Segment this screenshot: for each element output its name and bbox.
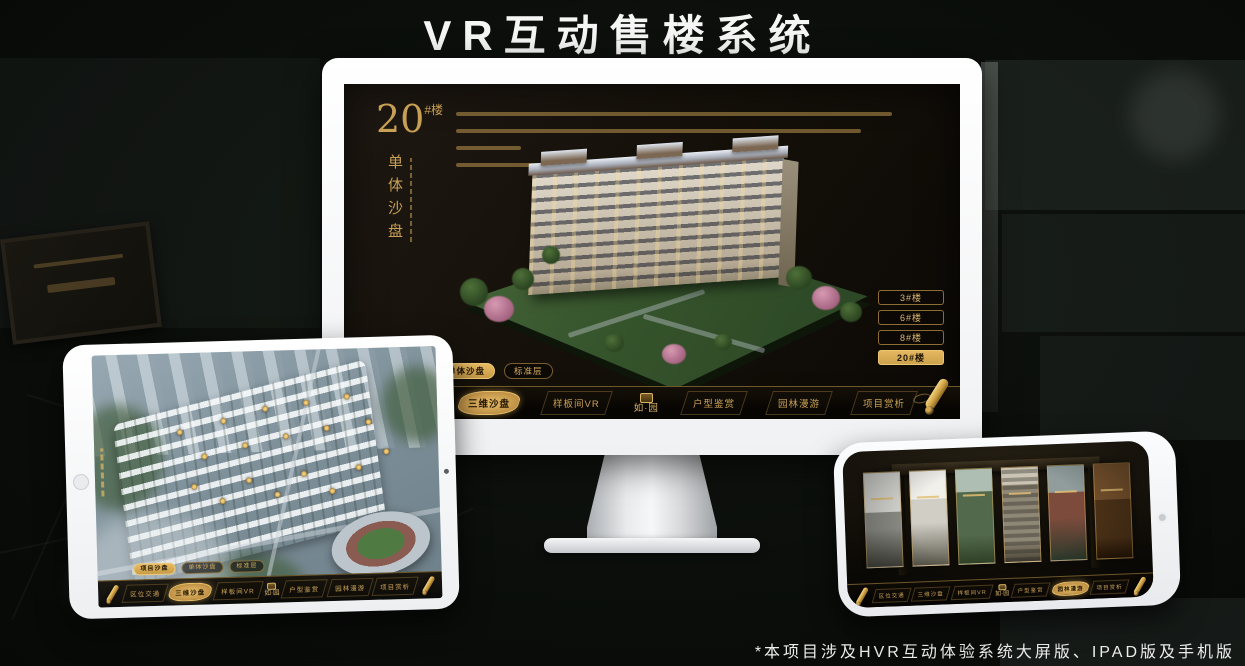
tree bbox=[512, 268, 534, 290]
nav-item-3d-sandtable[interactable]: 三维沙盘 bbox=[167, 582, 214, 601]
logo-seal-icon bbox=[640, 393, 653, 403]
building-subtitle-vertical: 单体沙盘 bbox=[384, 154, 405, 284]
nav-item-showroom-vr[interactable]: 样板间VR bbox=[540, 391, 613, 415]
floor-button-3[interactable]: 3#楼 bbox=[878, 290, 944, 305]
nav-item-showroom-vr[interactable]: 样板间VR bbox=[212, 581, 263, 600]
scroll-ornament-icon[interactable] bbox=[420, 574, 437, 596]
tree bbox=[714, 334, 732, 350]
nav-item-garden-tour[interactable]: 园林漫游 bbox=[326, 578, 373, 597]
tree bbox=[542, 246, 560, 264]
tab-standard-floor[interactable]: 标准层 bbox=[504, 363, 553, 380]
building-marker[interactable] bbox=[201, 453, 207, 459]
building-marker[interactable] bbox=[176, 429, 182, 435]
tree bbox=[840, 302, 862, 322]
nav-item-location[interactable]: 区位交通 bbox=[871, 587, 911, 603]
background-texture bbox=[981, 62, 998, 412]
floor-selector: 3#楼 6#楼 8#楼 20#楼 bbox=[878, 290, 944, 370]
tab-standard-floor[interactable]: 标准层 bbox=[229, 560, 264, 573]
building-model[interactable] bbox=[456, 150, 876, 394]
building-marker[interactable] bbox=[242, 442, 248, 448]
building-marker[interactable] bbox=[365, 418, 371, 424]
plaque-text-line bbox=[47, 277, 116, 293]
nav-item-project-gallery[interactable]: 项目赏析 bbox=[850, 391, 918, 415]
blossom-tree bbox=[812, 286, 840, 310]
nav-item-3d-sandtable[interactable]: 三维沙盘 bbox=[455, 391, 523, 415]
background-plaque bbox=[0, 221, 162, 344]
camera-icon bbox=[444, 469, 449, 474]
floor-button-20[interactable]: 20#楼 bbox=[878, 350, 944, 365]
description-text-line bbox=[456, 112, 892, 116]
scroll-end bbox=[856, 601, 861, 606]
building-number: 20 bbox=[376, 97, 424, 141]
tree bbox=[460, 278, 488, 306]
blossom-tree bbox=[662, 344, 686, 364]
description-text-line bbox=[456, 129, 861, 133]
ipad-screen: 项目沙盘 单体沙盘 标准层 区位交通 三维沙盘 样板间VR 如·园 户型鉴赏 园… bbox=[92, 346, 443, 608]
scroll-end bbox=[422, 590, 427, 595]
logo-text: 如·园 bbox=[995, 591, 1009, 598]
nav-item-3d-sandtable[interactable]: 三维沙盘 bbox=[911, 586, 951, 602]
plaque-text-line bbox=[33, 254, 124, 269]
footnote: *本项目涉及HVR互动体验系统大屏版、IPAD版及手机版 bbox=[755, 638, 1235, 662]
scroll-end bbox=[925, 406, 934, 415]
residential-building bbox=[528, 157, 784, 295]
tab-single-sandtable[interactable]: 单体沙盘 bbox=[181, 561, 223, 574]
background-texture bbox=[1002, 214, 1245, 332]
scroll-ornament-icon[interactable] bbox=[853, 585, 870, 608]
monitor-stand-neck bbox=[587, 452, 717, 546]
logo-seal-icon bbox=[998, 584, 1006, 590]
building-heading: 20#楼 bbox=[376, 100, 443, 138]
camera-icon bbox=[1159, 514, 1166, 521]
background-texture bbox=[1040, 336, 1245, 440]
scroll-ornament-icon[interactable] bbox=[1131, 574, 1148, 597]
blossom-tree bbox=[484, 296, 514, 322]
nav-item-unit-plans[interactable]: 户型鉴赏 bbox=[680, 391, 748, 415]
scroll-end bbox=[106, 599, 111, 604]
home-button[interactable] bbox=[73, 474, 89, 490]
poster-canvas: VR互动售楼系统 20#楼 单体沙盘 bbox=[0, 0, 1245, 666]
phone-device: 区位交通 三维沙盘 样板间VR 如·园 户型鉴赏 园林漫游 项目赏析 bbox=[833, 430, 1181, 617]
floor-button-6[interactable]: 6#楼 bbox=[878, 310, 944, 325]
floor-button-8[interactable]: 8#楼 bbox=[878, 330, 944, 345]
tab-project-sandtable[interactable]: 项目沙盘 bbox=[133, 562, 175, 575]
tree bbox=[786, 266, 812, 290]
brand-logo: 如·园 bbox=[634, 393, 659, 414]
nav-item-garden-tour[interactable]: 园林漫游 bbox=[1050, 580, 1090, 596]
scroll-end bbox=[1134, 590, 1139, 595]
brand-logo: 如·园 bbox=[995, 584, 1009, 598]
building-marker[interactable] bbox=[221, 417, 227, 423]
ipad-device: 项目沙盘 单体沙盘 标准层 区位交通 三维沙盘 样板间VR 如·园 户型鉴赏 园… bbox=[62, 335, 459, 620]
nav-item-project-gallery[interactable]: 项目赏析 bbox=[1090, 579, 1130, 595]
building-marker[interactable] bbox=[383, 448, 389, 454]
nav-item-unit-plans[interactable]: 户型鉴赏 bbox=[1011, 582, 1051, 598]
building-marker[interactable] bbox=[329, 488, 335, 494]
logo-text: 如·园 bbox=[264, 589, 279, 596]
background-texture bbox=[0, 58, 320, 328]
brand-logo: 如·园 bbox=[264, 582, 280, 597]
tree bbox=[604, 334, 624, 352]
nav-item-project-gallery[interactable]: 项目赏析 bbox=[372, 577, 419, 596]
nav-item-garden-tour[interactable]: 园林漫游 bbox=[765, 391, 833, 415]
phone-screen: 区位交通 三维沙盘 样板间VR 如·园 户型鉴赏 园林漫游 项目赏析 bbox=[842, 441, 1154, 609]
logo-text: 如·园 bbox=[634, 403, 659, 414]
page-title: VR互动售楼系统 bbox=[0, 2, 1245, 63]
monitor-stand-base bbox=[544, 538, 760, 553]
background-fog bbox=[1130, 70, 1220, 160]
scroll-ornament-icon[interactable] bbox=[916, 376, 956, 418]
nav-item-showroom-vr[interactable]: 样板间VR bbox=[950, 584, 993, 600]
scroll-ornament-icon[interactable] bbox=[104, 583, 121, 605]
nav-item-unit-plans[interactable]: 户型鉴赏 bbox=[280, 579, 327, 598]
subtitle-divider bbox=[410, 158, 412, 242]
building-unit: #楼 bbox=[424, 103, 443, 117]
background-texture bbox=[985, 60, 1245, 210]
nav-item-location[interactable]: 区位交通 bbox=[121, 584, 168, 603]
